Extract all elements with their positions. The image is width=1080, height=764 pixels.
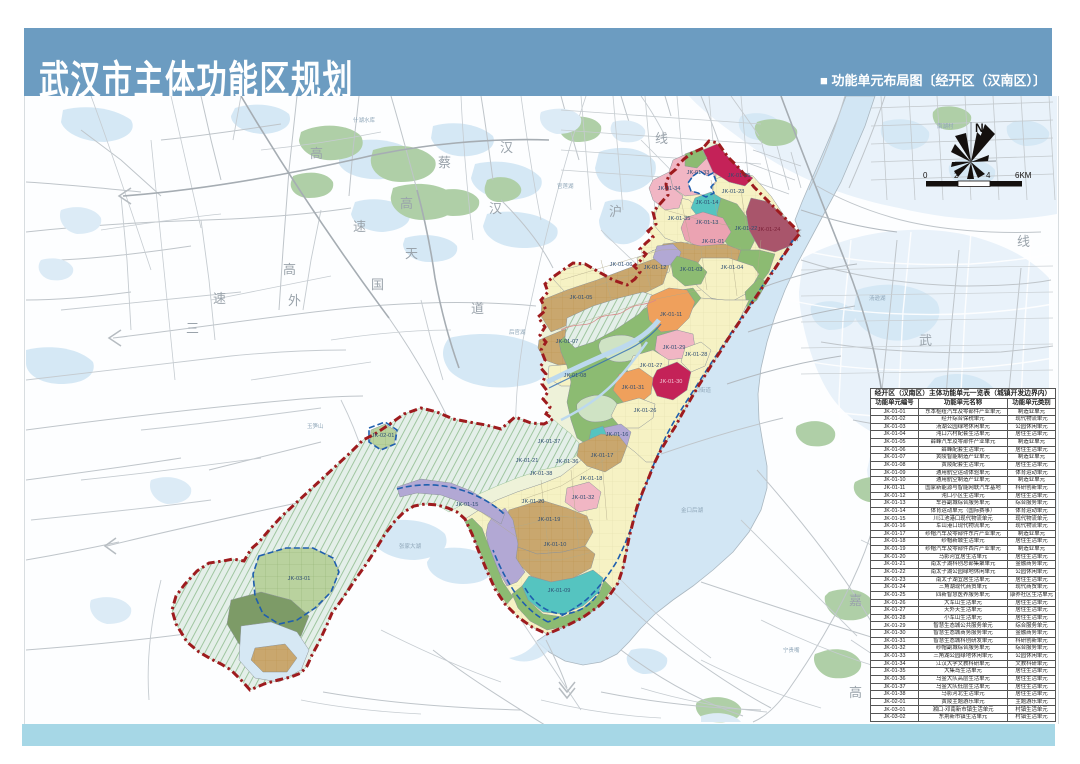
svg-text:JK-01-04: JK-01-04 — [721, 265, 744, 271]
svg-text:三: 三 — [186, 321, 199, 336]
svg-text:JK-01-17: JK-01-17 — [591, 453, 614, 459]
svg-text:JK-01-09: JK-01-09 — [548, 588, 571, 594]
svg-text:JK-01-31: JK-01-31 — [622, 385, 645, 391]
svg-text:线: 线 — [655, 131, 668, 146]
svg-text:JK-01-37: JK-01-37 — [538, 439, 561, 445]
svg-text:JK-01-26: JK-01-26 — [634, 408, 657, 414]
svg-text:武: 武 — [919, 333, 932, 348]
svg-text:JK-01-20: JK-01-20 — [522, 499, 545, 505]
svg-text:JK-01-30: JK-01-30 — [660, 379, 683, 385]
svg-text:JK-01-28: JK-01-28 — [685, 352, 708, 358]
svg-text:线: 线 — [1017, 234, 1030, 249]
svg-text:JK-01-19: JK-01-19 — [538, 517, 561, 523]
svg-text:高: 高 — [283, 262, 296, 277]
svg-text:JK-03-01: JK-03-01 — [288, 576, 311, 582]
svg-text:外: 外 — [288, 293, 301, 308]
svg-text:JK-01-29: JK-01-29 — [663, 345, 686, 351]
svg-text:JK-01-10: JK-01-10 — [544, 542, 567, 548]
svg-text:JK-01-24: JK-01-24 — [758, 227, 781, 233]
svg-text:金口后湖: 金口后湖 — [681, 506, 704, 514]
svg-text:JK-01-06: JK-01-06 — [610, 262, 633, 268]
svg-text:JK-01-03: JK-01-03 — [680, 267, 703, 273]
svg-text:4: 4 — [986, 171, 991, 180]
svg-text:宁贵嘴: 宁贵嘴 — [783, 646, 800, 654]
svg-text:汤逊湖: 汤逊湖 — [869, 294, 886, 302]
svg-text:JK-01-13: JK-01-13 — [696, 220, 719, 226]
svg-text:蔡: 蔡 — [438, 155, 451, 170]
svg-text:张家大湖: 张家大湖 — [399, 542, 422, 550]
svg-text:天: 天 — [405, 246, 418, 261]
svg-text:高: 高 — [400, 196, 413, 211]
svg-text:官莲湖: 官莲湖 — [557, 182, 574, 190]
svg-text:汉: 汉 — [489, 201, 502, 216]
svg-text:JK-01-01: JK-01-01 — [702, 239, 725, 245]
svg-text:JK-01-22: JK-01-22 — [735, 226, 758, 232]
svg-text:国: 国 — [371, 277, 384, 292]
svg-text:2: 2 — [954, 171, 959, 180]
svg-text:JK-01-16: JK-01-16 — [606, 432, 629, 438]
svg-text:后官湖: 后官湖 — [509, 328, 526, 336]
svg-text:JK-01-08: JK-01-08 — [564, 373, 587, 379]
svg-text:JK-01-32: JK-01-32 — [572, 495, 595, 501]
svg-text:JK-01-34: JK-01-34 — [658, 186, 681, 192]
svg-text:JK-01-15: JK-01-15 — [456, 502, 479, 508]
svg-text:道: 道 — [471, 301, 484, 316]
svg-text:速: 速 — [353, 219, 366, 234]
svg-text:JK-01-27: JK-01-27 — [640, 363, 663, 369]
svg-text:0: 0 — [923, 171, 928, 180]
svg-text:南湖村: 南湖村 — [937, 122, 954, 130]
svg-text:JK-01-21: JK-01-21 — [516, 458, 539, 464]
svg-text:JK-01-36: JK-01-36 — [556, 459, 579, 465]
svg-text:玉笋山: 玉笋山 — [307, 422, 324, 430]
svg-text:高: 高 — [310, 146, 323, 161]
svg-text:JK-01-07: JK-01-07 — [556, 339, 579, 345]
svg-text:JK-01-18: JK-01-18 — [580, 476, 603, 482]
svg-text:沪: 沪 — [609, 204, 622, 219]
svg-text:JK-01-05: JK-01-05 — [570, 295, 593, 301]
svg-text:高: 高 — [849, 685, 862, 700]
svg-text:嘉: 嘉 — [849, 593, 862, 608]
svg-text:JK-01-23: JK-01-23 — [722, 189, 745, 195]
svg-text:JK-01-38: JK-01-38 — [530, 471, 553, 477]
svg-text:6KM: 6KM — [1015, 171, 1032, 180]
svg-text:JK-01-11: JK-01-11 — [660, 312, 682, 318]
svg-text:JK-01-12: JK-01-12 — [644, 265, 667, 271]
svg-text:JK-02-01: JK-02-01 — [372, 433, 395, 439]
svg-text:汉: 汉 — [500, 140, 513, 155]
svg-text:JK-01-14: JK-01-14 — [696, 200, 719, 206]
svg-text:JK-01-35: JK-01-35 — [668, 216, 691, 222]
svg-text:JK-01-25: JK-01-25 — [728, 173, 751, 179]
svg-text:JK-01-33: JK-01-33 — [687, 170, 710, 176]
svg-text:N: N — [975, 121, 984, 135]
svg-text:速: 速 — [213, 291, 226, 306]
svg-text:什湖水库: 什湖水库 — [353, 116, 376, 124]
